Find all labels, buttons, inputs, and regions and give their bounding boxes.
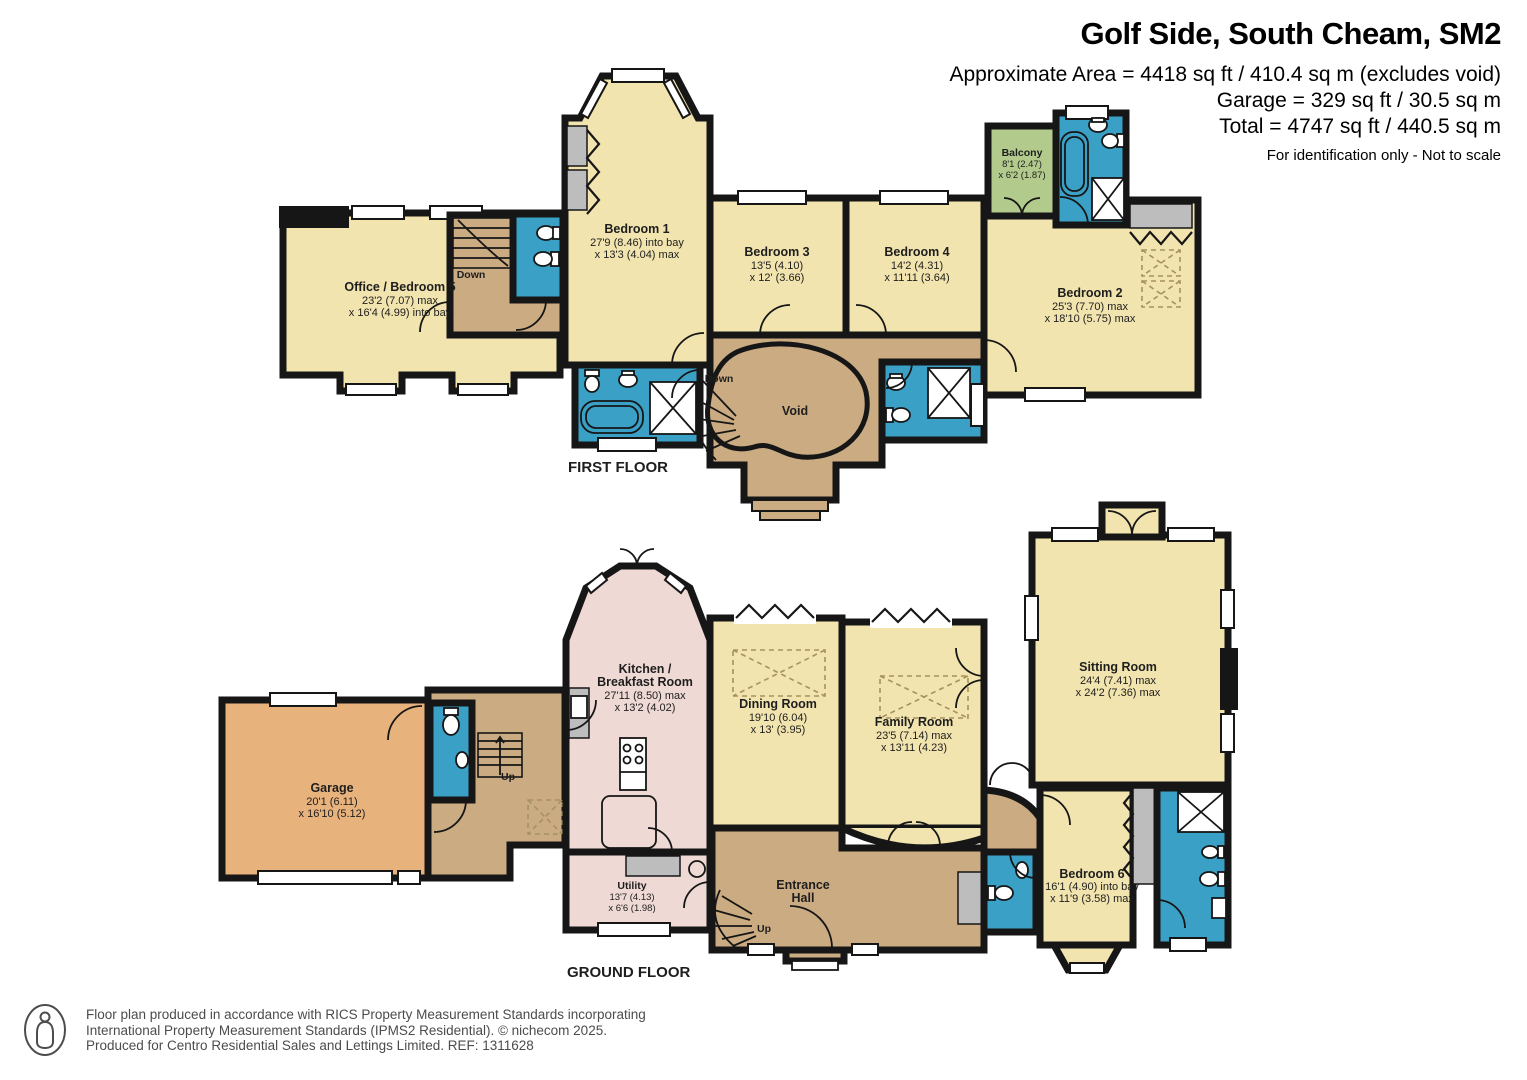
disclaimer-text: Floor plan produced in accordance with R… <box>86 1002 646 1054</box>
bedroom4-dim2: x 11'11 (3.64) <box>884 272 949 284</box>
bedroom6-dim2: x 11'9 (3.58) max <box>1050 893 1134 905</box>
toilet-icon <box>1200 872 1225 886</box>
ground-floor-label: GROUND FLOOR <box>567 964 690 981</box>
kitchen-dim2: x 13'2 (4.02) <box>615 702 676 714</box>
dining-dim1: 19'10 (6.04) <box>749 712 807 724</box>
sitting-dim1: 24'4 (7.41) max <box>1080 675 1157 687</box>
person-scale-icon <box>22 1002 68 1058</box>
toilet-icon <box>585 370 599 392</box>
window <box>612 69 664 82</box>
door-arc <box>990 763 1034 785</box>
approximate-area-line: Approximate Area = 4418 sq ft / 410.4 sq… <box>949 62 1501 88</box>
utility-sink-icon <box>689 861 705 877</box>
kitchen-island <box>602 796 656 848</box>
total-area-line: Total = 4747 sq ft / 440.5 sq m <box>949 114 1501 140</box>
bedroom2-dim1: 25'3 (7.70) max <box>1052 301 1129 313</box>
toilet-icon <box>886 408 910 422</box>
family-dim2: x 13'11 (4.23) <box>881 742 947 754</box>
entrance-porch <box>786 950 844 961</box>
sink-icon <box>537 226 560 240</box>
dining-dim2: x 13' (3.95) <box>751 724 806 736</box>
cooker-icon <box>620 738 646 790</box>
not-to-scale-disclaimer: For identification only - Not to scale <box>949 147 1501 164</box>
ground-floor-plan: Garage 20'1 (6.11) x 16'10 (5.12) Up Kit… <box>222 505 1238 981</box>
bath-icon <box>581 401 643 433</box>
bedroom3-label: Bedroom 3 <box>744 245 809 259</box>
entrance-hall-label1: Entrance <box>776 878 830 892</box>
garage-label: Garage <box>310 781 353 795</box>
window <box>971 384 984 426</box>
kitchen-label2: Breakfast Room <box>597 675 693 689</box>
stairs-down-label: Down <box>457 269 486 281</box>
cabinet <box>1212 898 1226 918</box>
bedroom1-label: Bedroom 1 <box>604 222 669 236</box>
bedroom2-dim2: x 18'10 (5.75) max <box>1045 313 1136 325</box>
bedroom3-dim2: x 12' (3.66) <box>750 272 805 284</box>
stairs-up2-label: Up <box>757 923 771 935</box>
family-dim1: 23'5 (7.14) max <box>876 730 953 742</box>
hall-closet <box>958 872 984 924</box>
window <box>880 191 948 204</box>
disclaimer-line1: Floor plan produced in accordance with R… <box>86 1007 646 1023</box>
wc-entrance-hall <box>984 852 1036 932</box>
kitchen-label1: Kitchen / <box>619 662 672 676</box>
window <box>346 384 396 395</box>
office-label: Office / Bedroom 5 <box>344 280 455 294</box>
window <box>352 206 404 219</box>
bedroom2-label: Bedroom 2 <box>1057 286 1122 300</box>
garage-door <box>398 871 420 884</box>
appliance <box>626 856 680 876</box>
bedroom1-dim2: x 13'3 (4.04) max <box>595 249 680 261</box>
window <box>270 693 336 706</box>
family-label: Family Room <box>875 715 954 729</box>
wardrobe <box>1133 788 1157 884</box>
utility-label: Utility <box>617 880 646 892</box>
disclaimer-line2: International Property Measurement Stand… <box>86 1023 646 1039</box>
sink-icon <box>619 371 637 387</box>
office-dim1: 23'2 (7.07) max <box>362 295 439 307</box>
bay-window-gap <box>870 615 952 628</box>
bedroom4-dim1: 14'2 (4.31) <box>891 260 943 272</box>
window <box>1221 714 1234 752</box>
window <box>852 944 878 955</box>
toilet-icon <box>988 886 1013 900</box>
shower-icon <box>1178 792 1224 832</box>
bedroom4-label: Bedroom 4 <box>884 245 949 259</box>
toilet-icon <box>534 252 559 266</box>
wardrobe <box>567 170 587 210</box>
chimney <box>1220 648 1238 710</box>
kitchen-dim1: 27'11 (8.50) max <box>604 690 686 702</box>
bedroom3-dim1: 13'5 (4.10) <box>751 260 803 272</box>
window <box>598 923 670 936</box>
entrance-hall-label2: Hall <box>792 891 815 905</box>
sitting-label: Sitting Room <box>1079 660 1157 674</box>
bedroom1-dim1: 27'9 (8.46) into bay <box>590 237 684 249</box>
garage-dim2: x 16'10 (5.12) <box>299 808 366 820</box>
window <box>1168 528 1214 541</box>
porch-step <box>752 500 828 511</box>
garage-dim1: 20'1 (6.11) <box>306 796 357 808</box>
window <box>1070 963 1104 973</box>
balcony-dim2: x 6'2 (1.87) <box>998 170 1045 181</box>
dining-label: Dining Room <box>739 697 817 711</box>
window <box>738 191 806 204</box>
kitchen-sink-icon <box>571 696 587 718</box>
utility-dim1: 13'7 (4.13) <box>609 892 654 903</box>
bathroom-first-floor-right <box>882 362 984 440</box>
footer-block: Floor plan produced in accordance with R… <box>22 1002 646 1058</box>
property-title: Golf Side, South Cheam, SM2 <box>949 16 1501 52</box>
utility-dim2: x 6'6 (1.98) <box>608 903 655 914</box>
office-dim2: x 16'4 (4.99) into bay <box>349 307 452 319</box>
stairs-up-icon <box>478 733 522 777</box>
shower-icon <box>928 368 970 418</box>
window <box>458 384 508 395</box>
sink-icon <box>1202 846 1224 858</box>
window <box>1221 590 1234 628</box>
stairs-down2-label: Down <box>705 373 734 385</box>
title-block: Golf Side, South Cheam, SM2 Approximate … <box>949 16 1501 164</box>
bedroom6-label: Bedroom 6 <box>1059 867 1124 881</box>
window <box>1052 528 1098 541</box>
wardrobe <box>567 126 587 166</box>
bedroom6-dim1: 16'1 (4.90) into bay <box>1045 881 1139 893</box>
window <box>1025 388 1085 401</box>
garage-area-line: Garage = 329 sq ft / 30.5 sq m <box>949 88 1501 114</box>
shower-icon <box>1092 178 1124 220</box>
garage-door <box>258 871 392 884</box>
wall-block <box>279 206 349 228</box>
bay-window-gap <box>734 611 816 624</box>
sitting-dim2: x 24'2 (7.36) max <box>1076 687 1161 699</box>
disclaimer-line3: Produced for Centro Residential Sales an… <box>86 1038 646 1054</box>
stairs-up-label: Up <box>501 771 515 783</box>
room-bedroom1 <box>565 69 710 365</box>
window <box>598 438 656 451</box>
sink-icon <box>456 752 468 768</box>
bathroom-first-floor-left <box>575 365 700 451</box>
stairs-down-icon <box>453 218 511 268</box>
void-label: Void <box>782 404 808 418</box>
first-floor-label: FIRST FLOOR <box>568 459 668 476</box>
wardrobe <box>1130 204 1192 228</box>
window <box>748 944 774 955</box>
room-sitting <box>990 505 1238 785</box>
bathroom-bedroom6-ensuite <box>1157 788 1228 951</box>
window <box>1170 938 1206 951</box>
window <box>1025 596 1038 640</box>
entrance-step <box>792 961 838 970</box>
toilet-icon <box>443 708 459 735</box>
porch-step <box>760 511 820 520</box>
